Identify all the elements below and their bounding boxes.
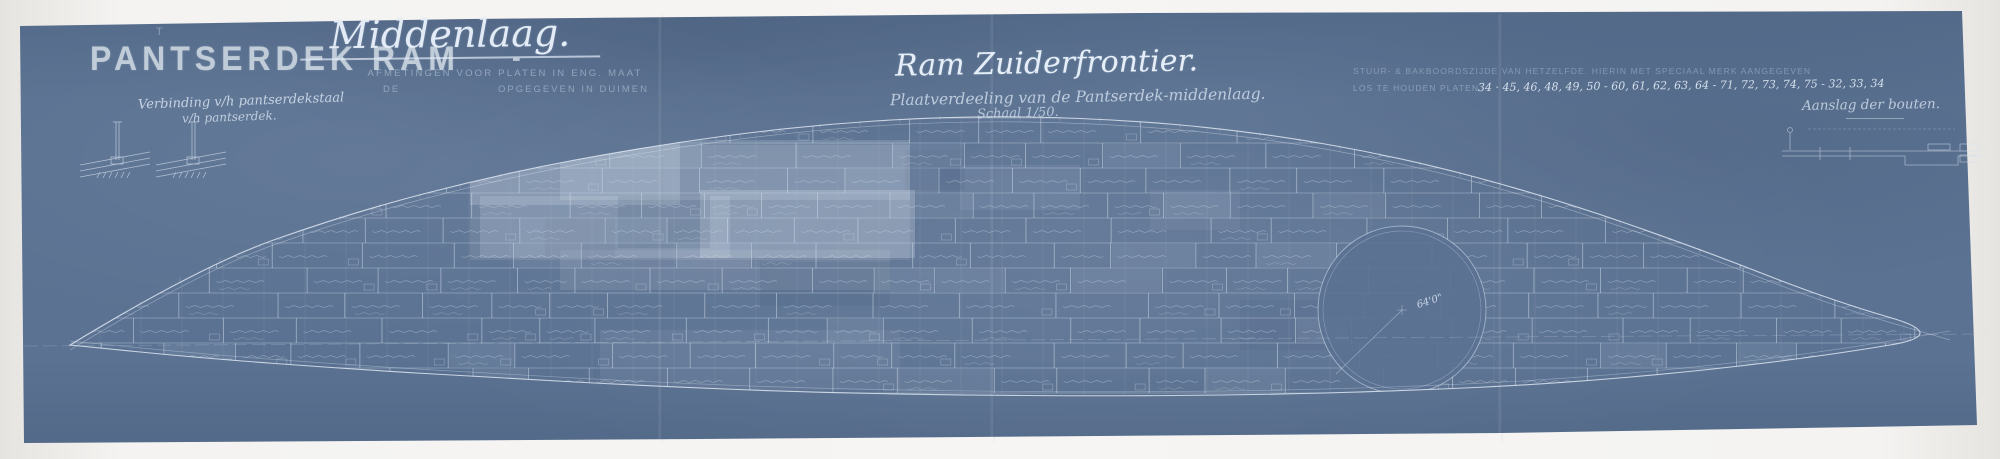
board-note: STUUR- & BAKBOORDSZIJDE VAN HETZELFDE. H… bbox=[1353, 66, 1811, 76]
scale-note: Schaal 1/50. bbox=[977, 105, 1059, 122]
loose-plates-label: LOS TE HOUDEN PLATEN bbox=[1353, 83, 1479, 93]
sheet-title: Middenlaag. bbox=[300, 10, 600, 60]
main-title: Ram Zuiderfrontier. bbox=[895, 43, 1199, 83]
blueprint-sheet: 64'0" PANTSERDEK RAM - T Middenlaag. AFM… bbox=[0, 0, 2000, 459]
sheet-note-line2-left: DE bbox=[383, 84, 400, 95]
bolts-note: Aanslag der bouten. bbox=[1802, 96, 1940, 114]
registration-mark: T bbox=[156, 26, 163, 38]
sheet-note-line1: AFMETINGEN VOOR PLATEN IN ENG. MAAT bbox=[345, 68, 665, 79]
sheet-note-line2-right: OPGEGEVEN IN DUIMEN bbox=[498, 84, 649, 95]
bolts-note-underline bbox=[1846, 118, 1904, 119]
